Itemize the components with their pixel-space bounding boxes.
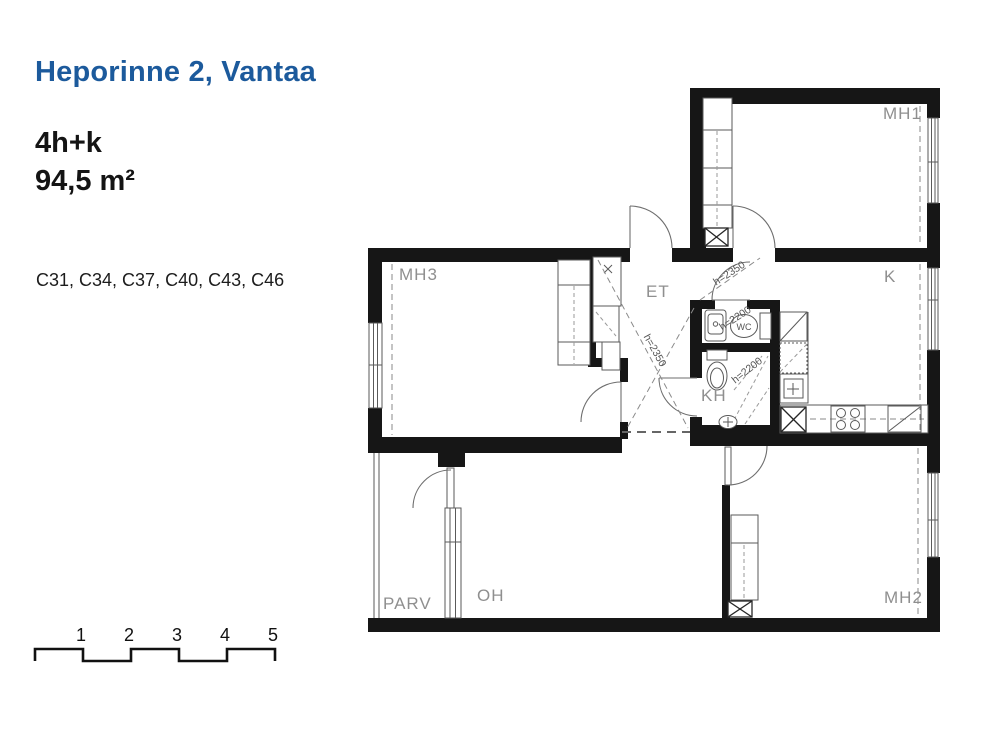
- shaft-box-mh1: [705, 228, 728, 246]
- room-label-k: K: [884, 267, 896, 286]
- balcony-outline: [374, 453, 379, 618]
- room-label-kh: KH: [701, 386, 727, 405]
- scale-label-5: 5: [268, 625, 278, 645]
- windows: [369, 118, 938, 618]
- utility-cabinets: [780, 312, 808, 403]
- wardrobe-mh1: [703, 98, 732, 228]
- scale-label-4: 4: [220, 625, 230, 645]
- scale-bar: 1 2 3 4 5: [35, 625, 278, 661]
- scale-bar-line: [35, 649, 275, 661]
- window-mh1: [928, 118, 938, 203]
- window-balcony: [445, 508, 461, 618]
- door-mh1: [733, 206, 775, 248]
- scale-label-3: 3: [172, 625, 182, 645]
- shaft-box-mh2: [728, 601, 752, 617]
- room-label-parv: PARV: [383, 594, 432, 613]
- room-label-et: ET: [646, 282, 670, 301]
- wardrobe-mh2: [731, 515, 758, 600]
- hand-sink-icon: [719, 416, 737, 429]
- floor-plan-drawing: MH1 K MH3 ET KH OH PARV MH2 WC h=2350 h=…: [0, 0, 1000, 750]
- window-k: [928, 268, 938, 350]
- height-label-hall: h=2350: [711, 259, 747, 288]
- scale-label-2: 2: [124, 625, 134, 645]
- floor-plan-page: Heporinne 2, Vantaa 4h+k 94,5 m² C31, C3…: [0, 0, 1000, 750]
- door-balcony: [413, 468, 454, 508]
- door-mh3: [581, 382, 621, 422]
- room-label-mh1: MH1: [883, 104, 922, 123]
- room-label-wc: WC: [737, 322, 752, 332]
- room-label-oh: OH: [477, 586, 505, 605]
- scale-label-1: 1: [76, 625, 86, 645]
- door-mh2: [725, 446, 767, 485]
- height-label-et: h=2350: [641, 332, 669, 369]
- room-label-mh2: MH2: [884, 588, 923, 607]
- wardrobe-mh3: [558, 260, 590, 365]
- closet-et: [593, 257, 621, 370]
- height-label-kh: h=2200: [730, 355, 765, 386]
- toilet-icon-kh: [707, 350, 727, 390]
- window-mh3: [369, 323, 382, 408]
- room-label-mh3: MH3: [399, 265, 438, 284]
- window-mh2: [928, 473, 938, 557]
- shaft-box-k: [781, 407, 806, 432]
- entrance-door: [630, 206, 672, 248]
